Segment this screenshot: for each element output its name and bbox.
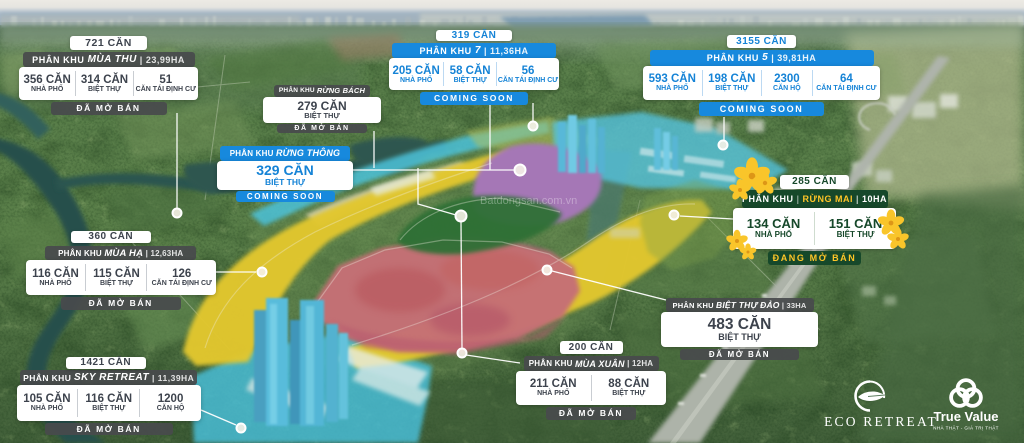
svg-text:NHÀ THẬT - GIÁ TRỊ THẬT: NHÀ THẬT - GIÁ TRỊ THẬT [933, 425, 999, 431]
svg-text:Batdongsan.com.vn: Batdongsan.com.vn [480, 195, 577, 207]
svg-text:ECO RETREAT: ECO RETREAT [824, 414, 938, 429]
svg-text:True Value: True Value [933, 409, 998, 424]
